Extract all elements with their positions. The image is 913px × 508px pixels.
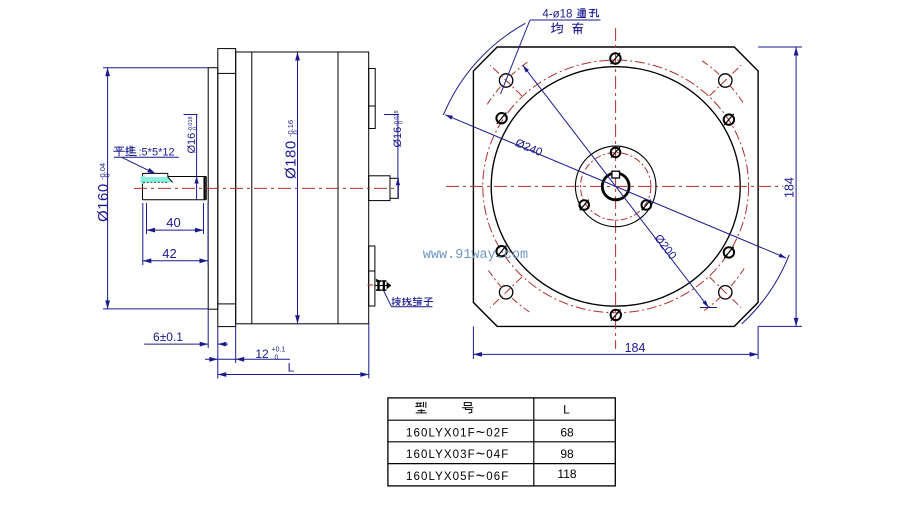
svg-text:160LYX05F~06F: 160LYX05F~06F [406,468,509,485]
svg-text:42: 42 [162,246,176,261]
svg-text:184: 184 [783,177,797,198]
svg-text:160LYX03F~04F: 160LYX03F~04F [406,446,509,463]
svg-text:Ø16: Ø16 [186,133,198,154]
svg-text:4-ø18: 4-ø18 [542,9,572,21]
svg-text:0: 0 [291,130,300,134]
svg-text:+0.1: +0.1 [272,347,286,354]
svg-text:0: 0 [399,121,405,124]
svg-text:12: 12 [255,347,269,361]
svg-text:L: L [563,403,570,417]
svg-text:40: 40 [166,215,180,230]
svg-text:Ø16: Ø16 [392,127,404,148]
svg-text:184: 184 [625,341,646,355]
svg-text:160LYX01F~02F: 160LYX01F~02F [406,425,509,442]
svg-text:0: 0 [275,355,279,362]
svg-text:L: L [288,361,295,375]
svg-text:68: 68 [560,426,574,440]
svg-text:118: 118 [557,467,576,481]
svg-text:6±0.1: 6±0.1 [153,330,183,344]
svg-text:0: 0 [192,127,198,130]
svg-text:Ø180: Ø180 [283,140,300,179]
svg-text:98: 98 [560,447,574,461]
svg-text:0: 0 [103,173,112,177]
svg-text::5*5*12: :5*5*12 [139,147,175,159]
svg-text:Ø160: Ø160 [95,183,112,222]
svg-text:www.91way.com: www.91way.com [423,248,528,263]
